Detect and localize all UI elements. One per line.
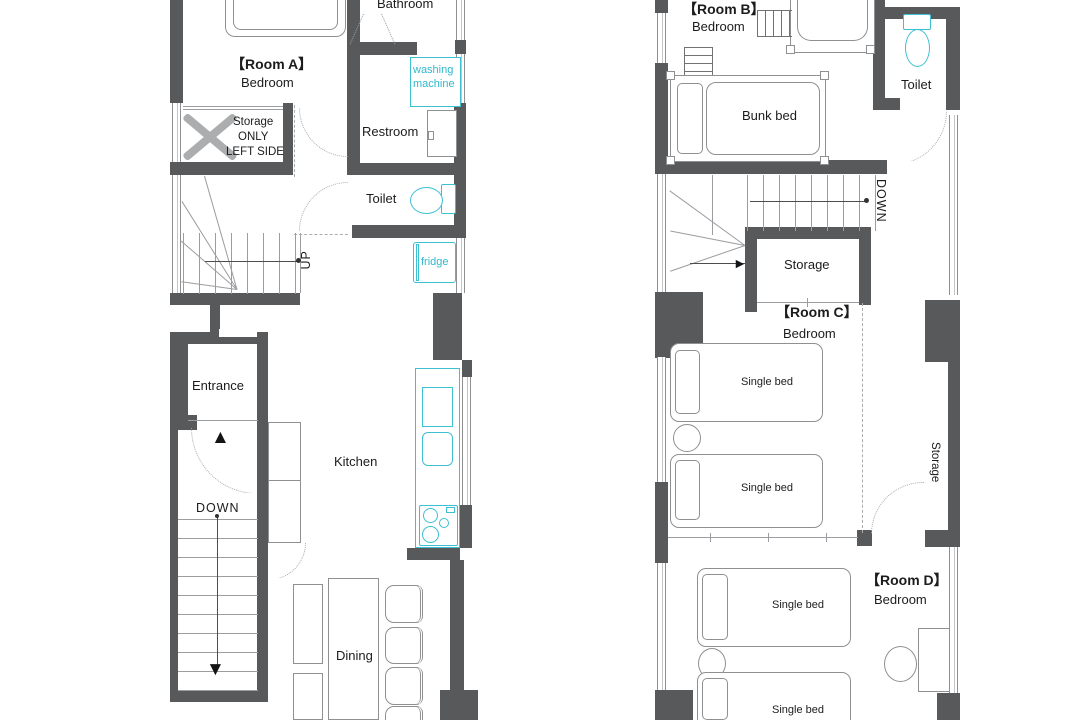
- stove-burner: [423, 508, 438, 523]
- window: [462, 377, 471, 505]
- wall-segment: [873, 98, 900, 110]
- window: [657, 357, 666, 482]
- toilet-label-f2: Toilet: [901, 77, 931, 93]
- bed-post: [786, 45, 795, 54]
- door-swing-arc-curve: [893, 111, 947, 161]
- toilet-label: Toilet: [366, 191, 396, 207]
- door-swing-arc-curve: [269, 543, 306, 578]
- turn-arrow-icon: ►: [733, 256, 747, 270]
- pillow: [702, 678, 728, 720]
- wall-segment: [859, 227, 871, 305]
- wall-segment: [948, 300, 960, 547]
- dining-chair: [385, 667, 423, 705]
- wall-segment: [170, 430, 178, 692]
- dining-chair: [385, 627, 423, 664]
- wall-segment: [946, 7, 960, 110]
- door-swing-arc: [299, 177, 348, 231]
- window: [172, 175, 181, 293]
- washing-machine-label: machine: [413, 78, 455, 90]
- door-swing-arc-curve: [299, 108, 348, 157]
- entrance-label: Entrance: [192, 378, 244, 394]
- window: [456, 0, 465, 40]
- bed-post: [666, 71, 675, 80]
- construction-line: [188, 420, 258, 421]
- toilet-tank: [441, 184, 456, 214]
- kitchen-label: Kitchen: [334, 454, 377, 470]
- kitchen-sink: [422, 387, 453, 427]
- door-swing-arc: [869, 482, 924, 534]
- room-a-bed-mattress: [233, 0, 338, 30]
- room-a-title: 【Room A】: [231, 56, 312, 74]
- wall-segment: [937, 693, 960, 720]
- restroom-label: Restroom: [362, 124, 418, 140]
- bed-post: [820, 71, 829, 80]
- wall-segment: [440, 690, 478, 720]
- bunk-ladder-icon: [684, 47, 713, 78]
- bifold-door-line: [381, 14, 395, 45]
- floorplan-canvas: UP fridge ▲ ▼ washing machine Bathroom 【…: [0, 0, 1080, 720]
- room-b-title: 【Room B】: [683, 1, 765, 19]
- window: [657, 174, 666, 292]
- stove-panel: [446, 507, 455, 513]
- stair-guide-line: [205, 261, 297, 262]
- stairs-down-label: DOWN: [196, 501, 240, 517]
- construction-line: [668, 537, 858, 538]
- wall-segment: [352, 163, 464, 175]
- bed-post: [866, 45, 875, 54]
- room-d-type: Bedroom: [874, 592, 927, 608]
- door-swing-arc-curve: [871, 482, 924, 534]
- desk-chair: [884, 646, 917, 682]
- pillow: [675, 350, 700, 414]
- room-c-bed1-label: Single bed: [741, 376, 793, 390]
- room-c-title: 【Room C】: [776, 304, 858, 322]
- wall-segment: [433, 293, 462, 360]
- construction-line: [768, 533, 769, 542]
- storage-closet-label: Storage: [233, 115, 273, 129]
- storage-wall-label: Storage: [928, 430, 942, 494]
- wall-segment: [170, 690, 268, 702]
- window: [456, 238, 465, 293]
- wall-segment: [455, 40, 466, 54]
- window: [172, 103, 181, 162]
- room-d-bed1-label: Single bed: [772, 599, 824, 613]
- washing-machine-label: washing: [413, 64, 453, 76]
- wall-segment: [450, 560, 464, 692]
- storage-closet-label: LEFT SIDE: [226, 145, 284, 159]
- toilet-bowl: [410, 187, 443, 214]
- wall-segment: [655, 160, 887, 174]
- stairs-down-steps-f2: [747, 175, 888, 231]
- door-swing-arc: [893, 111, 948, 161]
- wall-segment: [655, 0, 668, 13]
- dashed-opening: [294, 105, 295, 177]
- stair-guide-line: [750, 201, 867, 202]
- kitchen-cabinet: [422, 432, 453, 466]
- restroom-door-handle: [428, 131, 434, 140]
- stair-guide-line: [217, 517, 218, 667]
- room-d-title: 【Room D】: [866, 572, 948, 590]
- construction-line: [826, 533, 827, 542]
- stair-guide-dot: [864, 198, 869, 203]
- shoe-cabinet: [268, 422, 301, 481]
- pillow: [677, 83, 703, 154]
- door-swing-arc-curve: [191, 428, 257, 493]
- wall-segment: [283, 103, 293, 175]
- wall-segment: [257, 332, 268, 702]
- room-b-top-bed-mattress: [797, 0, 868, 41]
- pillow: [675, 460, 700, 520]
- bathroom-label: Bathroom: [377, 0, 433, 12]
- room-b-type: Bedroom: [692, 19, 745, 35]
- wall-segment: [925, 530, 960, 547]
- stove-burner: [422, 526, 439, 543]
- down-arrow-icon: ▼: [206, 660, 225, 679]
- dining-bench: [293, 673, 323, 720]
- dashed-opening: [862, 303, 863, 533]
- wall-segment: [170, 162, 290, 175]
- storage-hall-label: Storage: [784, 257, 830, 273]
- wall-segment: [407, 548, 460, 560]
- room-d-bed2-label: Single bed: [772, 704, 824, 718]
- window: [657, 563, 666, 690]
- wall-segment: [170, 293, 300, 305]
- desk: [918, 628, 950, 692]
- toilet-tank-f2: [903, 14, 931, 30]
- dining-label: Dining: [336, 648, 373, 664]
- construction-line: [710, 533, 711, 542]
- wall-segment: [170, 0, 183, 103]
- door-swing-arc: [269, 543, 309, 578]
- bed-post: [666, 156, 675, 165]
- dining-bench: [293, 584, 323, 664]
- pillow: [702, 574, 728, 640]
- wall-segment: [655, 482, 668, 563]
- bed-post: [820, 156, 829, 165]
- room-a-type: Bedroom: [241, 75, 294, 91]
- door-swing-arc-curve: [299, 182, 348, 231]
- wall-segment: [655, 690, 693, 720]
- shoe-cabinet: [268, 480, 301, 543]
- construction-line: [757, 302, 859, 303]
- window: [949, 115, 958, 295]
- wall-segment: [352, 225, 464, 238]
- door-swing-arc: [191, 428, 257, 493]
- stairs-up-label: UP: [299, 239, 315, 281]
- fridge-door-line: [416, 244, 419, 281]
- wall-segment: [462, 360, 472, 377]
- dashed-opening: [294, 234, 348, 235]
- dining-chair: [385, 585, 423, 623]
- wall-segment: [357, 42, 417, 55]
- dining-chair: [385, 706, 423, 720]
- bunk-bed-label: Bunk bed: [742, 108, 797, 124]
- window: [657, 13, 666, 63]
- construction-line: [183, 109, 283, 110]
- door-swing-arc: [299, 108, 348, 161]
- window: [949, 547, 958, 693]
- room-c-type: Bedroom: [783, 326, 836, 342]
- storage-closet-label: ONLY: [238, 130, 268, 144]
- toilet-bowl-f2: [905, 29, 930, 67]
- fridge-label: fridge: [421, 255, 449, 269]
- construction-line: [183, 106, 283, 107]
- stove-burner: [439, 518, 449, 528]
- construction-line: [712, 175, 713, 235]
- stairs-down-label-f2: DOWN: [872, 171, 888, 231]
- wall-segment: [460, 505, 472, 548]
- plan-graphic: washing machine: [413, 63, 455, 92]
- wall-notch: [219, 329, 257, 337]
- side-table: [673, 424, 701, 452]
- room-c-bed2-label: Single bed: [741, 482, 793, 496]
